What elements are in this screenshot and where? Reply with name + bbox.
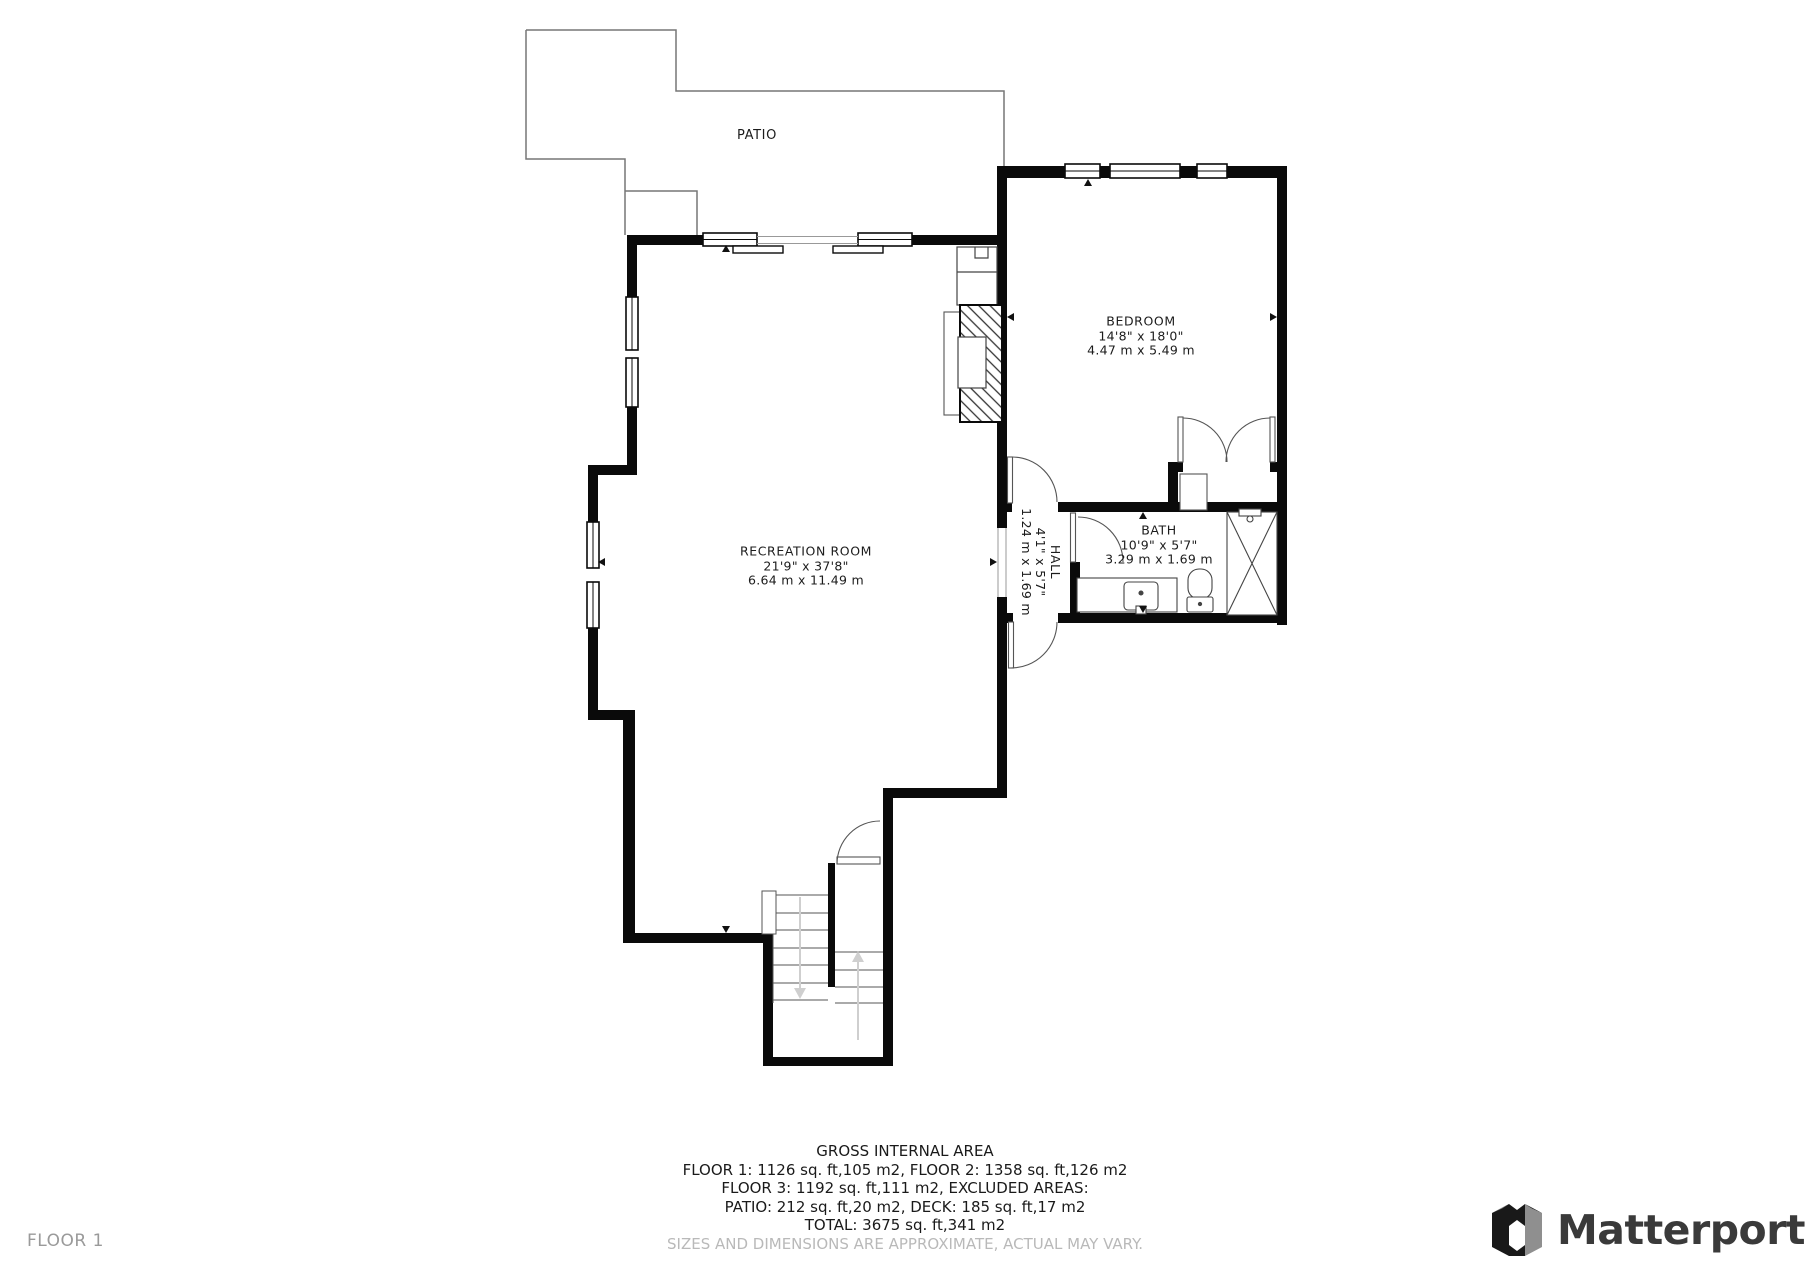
fireplace xyxy=(944,247,1002,422)
area-summary-line: FLOOR 1: 1126 sq. ft,105 m2, FLOOR 2: 13… xyxy=(667,1161,1143,1180)
recreation-room-size-imperial: 21'9" x 37'8" xyxy=(740,559,872,574)
recreation-room-name: RECREATION ROOM xyxy=(740,544,872,559)
matterport-wordmark: Matterport xyxy=(1557,1206,1805,1254)
hall-label: HALL 4'1" x 5'7" 1.24 m x 1.69 m xyxy=(1018,508,1062,616)
hall-west-opening xyxy=(998,528,1006,597)
floorplan-page: PATIO RECREATION ROOM 21'9" x 37'8" 6.64… xyxy=(0,0,1812,1281)
bath-size-imperial: 10'9" x 5'7" xyxy=(1105,538,1213,553)
recreation-room-size-metric: 6.64 m x 11.49 m xyxy=(740,573,872,588)
bedroom-size-imperial: 14'8" x 18'0" xyxy=(1087,329,1195,344)
staircase xyxy=(762,891,883,1003)
area-summary-disclaimer: SIZES AND DIMENSIONS ARE APPROXIMATE, AC… xyxy=(667,1235,1143,1254)
patio-label: PATIO xyxy=(737,129,777,144)
bath-size-metric: 3.29 m x 1.69 m xyxy=(1105,552,1213,567)
floor-indicator: FLOOR 1 xyxy=(27,1231,104,1251)
hall-size-metric: 1.24 m x 1.69 m xyxy=(1018,508,1033,616)
matterport-m-icon xyxy=(1490,1202,1544,1258)
hall-name: HALL xyxy=(1047,508,1062,616)
closet-nook xyxy=(1180,474,1207,510)
toilet xyxy=(1187,569,1213,612)
patio-name: PATIO xyxy=(737,129,777,144)
bedroom-name: BEDROOM xyxy=(1087,314,1195,329)
bath-name: BATH xyxy=(1105,523,1213,538)
matterport-brand: Matterport xyxy=(1490,1202,1805,1258)
area-summary-line: FLOOR 3: 1192 sq. ft,111 m2, EXCLUDED AR… xyxy=(667,1179,1143,1198)
bath-label: BATH 10'9" x 5'7" 3.29 m x 1.69 m xyxy=(1105,523,1213,567)
shower xyxy=(1227,509,1277,615)
walls xyxy=(588,166,1287,1066)
area-summary-title: GROSS INTERNAL AREA xyxy=(667,1142,1143,1161)
floorplan-drawing xyxy=(0,0,1812,1281)
bedroom-label: BEDROOM 14'8" x 18'0" 4.47 m x 5.49 m xyxy=(1087,314,1195,358)
area-summary-line: PATIO: 212 sq. ft,20 m2, DECK: 185 sq. f… xyxy=(667,1198,1143,1217)
hall-size-imperial: 4'1" x 5'7" xyxy=(1033,508,1048,616)
vanity-sink xyxy=(1077,578,1177,614)
area-summary: GROSS INTERNAL AREA FLOOR 1: 1126 sq. ft… xyxy=(667,1142,1143,1254)
bedroom-size-metric: 4.47 m x 5.49 m xyxy=(1087,343,1195,358)
area-summary-line: TOTAL: 3675 sq. ft,341 m2 xyxy=(667,1216,1143,1235)
recreation-room-label: RECREATION ROOM 21'9" x 37'8" 6.64 m x 1… xyxy=(740,544,872,588)
